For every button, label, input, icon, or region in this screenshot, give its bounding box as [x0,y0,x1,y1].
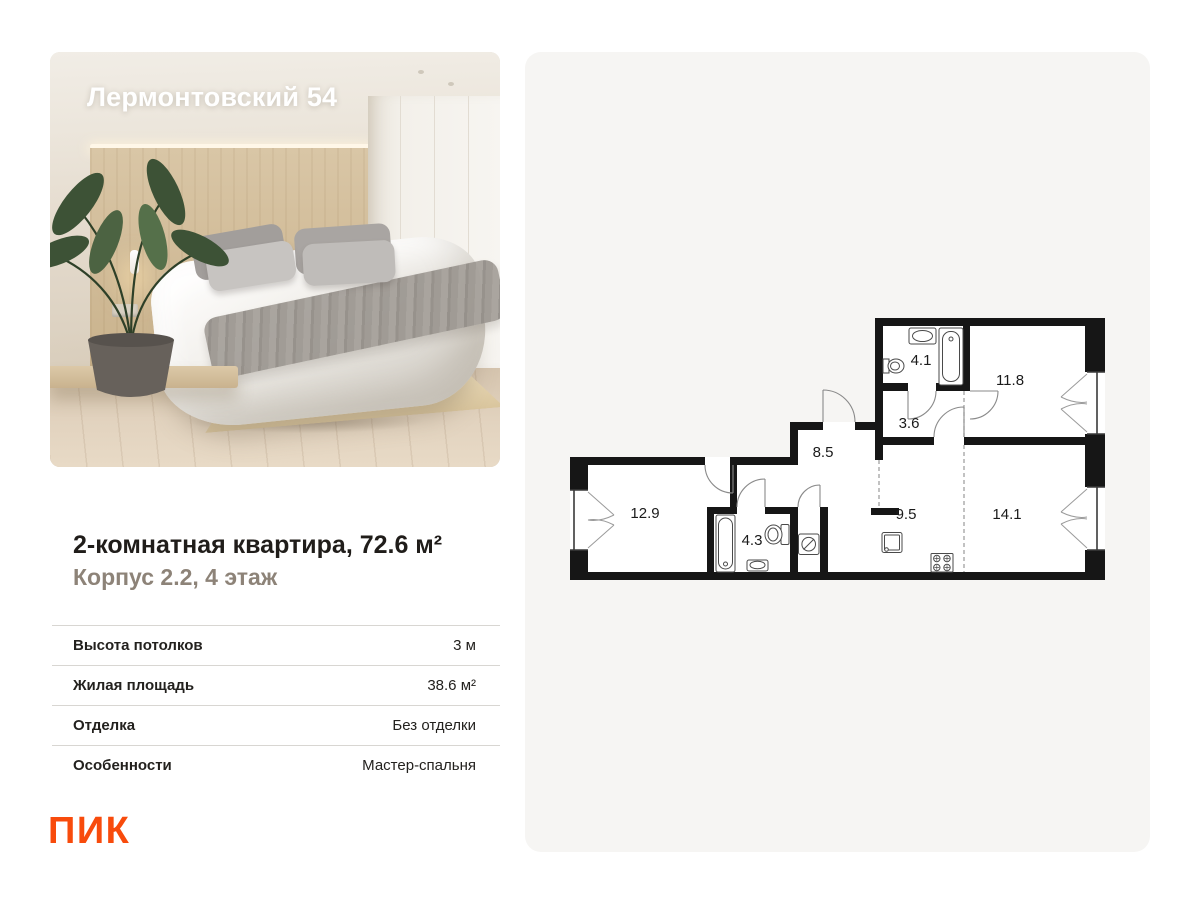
room-area-label: 9.5 [896,506,917,523]
washing-machine-icon [799,534,820,555]
room-area-label: 14.1 [992,506,1021,523]
spec-value: Мастер-спальня [362,757,476,774]
kitchen-sink-icon [882,533,902,553]
spec-row-ceiling-height: Высота потолков 3 м [52,625,500,665]
sink-icon [909,328,936,344]
spec-label: Особенности [73,757,172,774]
spec-value: Без отделки [392,717,476,734]
bedroom-photo: Лермонтовский 54 [50,52,500,467]
spec-row-features: Особенности Мастер-спальня [52,745,500,785]
stove-icon [931,554,953,573]
washbasin-icon [883,359,904,373]
floor-plan: 4.1 11.8 3.6 8.5 12.9 4.3 9.5 14.1 [570,318,1105,580]
plan-footprint [570,318,1105,580]
room-area-label: 4.1 [911,352,932,369]
bathtub-icon [939,328,963,385]
spec-label: Жилая площадь [73,677,194,694]
room-area-label: 8.5 [813,444,834,461]
room-area-label: 12.9 [630,505,659,522]
pillow [302,240,396,287]
room-area-label: 11.8 [996,372,1024,389]
spec-value: 3 м [453,637,476,654]
toilet-icon [765,525,789,545]
ceiling-downlight [418,70,424,74]
spec-value: 38.6 м² [427,677,476,694]
room-area-label: 4.3 [742,532,763,549]
project-title: Лермонтовский 54 [87,82,337,113]
spec-row-living-area: Жилая площадь 38.6 м² [52,665,500,705]
pik-logo: ПИК [48,810,130,853]
specs-table: Высота потолков 3 м Жилая площадь 38.6 м… [52,625,500,785]
floor-plan-card: 4.1 11.8 3.6 8.5 12.9 4.3 9.5 14.1 [525,52,1150,852]
spec-row-finishing: Отделка Без отделки [52,705,500,745]
plant-decoration [50,150,231,400]
listing-title: 2-комнатная квартира, 72.6 м² [73,531,442,560]
room-area-label: 3.6 [899,415,920,432]
spec-label: Отделка [73,717,135,734]
ceiling-downlight [448,82,454,86]
sink-icon [747,560,768,571]
listing-subtitle: Корпус 2.2, 4 этаж [73,564,277,591]
spec-label: Высота потолков [73,637,203,654]
plant-pot [88,340,174,397]
bathtub-icon [716,515,735,572]
